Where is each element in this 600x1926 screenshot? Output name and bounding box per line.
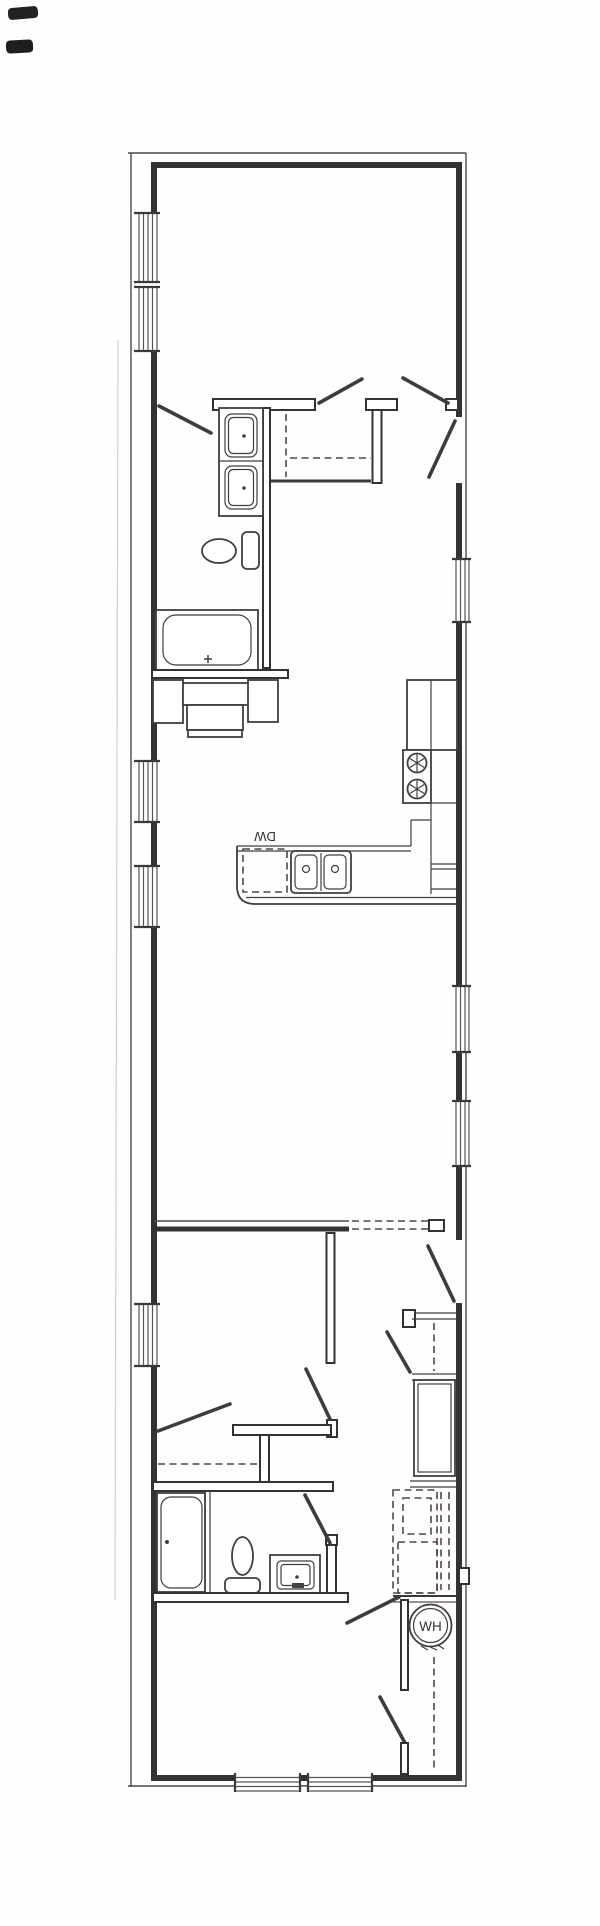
water-heater-closet: WH [347, 1597, 452, 1690]
closet-wall [401, 1743, 408, 1774]
window [452, 1101, 471, 1166]
bathroom-wall [153, 1593, 348, 1602]
scan-artifacts [6, 6, 118, 1600]
utility-cabinet [414, 1380, 455, 1476]
door-swing-closet [387, 1332, 410, 1372]
bathtub [157, 1493, 205, 1592]
closet-wall [260, 1435, 269, 1483]
front-bathroom [152, 408, 288, 678]
appliance-dashed [403, 1498, 431, 1534]
sink-drain [242, 434, 246, 438]
bathroom-wall [152, 670, 288, 678]
dishwasher-label: DW [253, 829, 275, 844]
cabinet [188, 730, 242, 737]
partition-wall [366, 399, 397, 410]
exterior-service-box [459, 1568, 469, 1584]
floor-plan-sheet: DW [0, 0, 600, 1926]
door-swing-closet [380, 1697, 405, 1743]
window [134, 1304, 160, 1366]
floor-plan-drawing: DW [0, 0, 600, 1926]
window [134, 213, 160, 282]
toilet-tank [242, 532, 259, 569]
cabinet [187, 705, 243, 730]
water-heater-label: WH [419, 1619, 442, 1634]
closet-wall [373, 410, 382, 483]
door-swing-bathroom [159, 406, 211, 433]
pipe-mark [430, 1647, 437, 1650]
closet-wall [233, 1425, 331, 1435]
window [134, 761, 160, 822]
hall-cabinets [153, 680, 278, 737]
cabinet [248, 680, 278, 722]
toilet-bowl [232, 1537, 253, 1575]
refrigerator [407, 680, 457, 750]
dishwasher [243, 849, 287, 892]
appliance-dashed [398, 1542, 437, 1593]
faucet-mark [292, 1583, 304, 1588]
closet-wall [401, 1600, 408, 1690]
door-swing-bedroom [403, 378, 448, 403]
range-burner [408, 780, 427, 799]
door-swing-rear-entry [428, 1246, 454, 1301]
bathroom-wall [153, 1482, 333, 1491]
bedroom-wall [327, 1233, 335, 1363]
window [452, 559, 471, 622]
cabinet [183, 683, 250, 705]
window [134, 287, 160, 351]
front-bedroom-partitions [159, 378, 458, 483]
window [134, 866, 160, 927]
sink-drain [295, 1575, 299, 1579]
bathroom-wall [327, 1545, 336, 1600]
tub-drain [165, 1540, 169, 1544]
sink-drain [242, 486, 246, 490]
laundry-area [393, 1380, 457, 1602]
rear-bedroom [158, 1233, 337, 1483]
rear-bathroom [153, 1482, 348, 1602]
window [235, 1773, 300, 1792]
scan-mark [8, 6, 39, 21]
scan-mark [6, 39, 34, 53]
wall-cap [429, 1220, 444, 1231]
range-burner [408, 754, 427, 773]
door-swing-closet [319, 379, 362, 403]
living-room-divider-wall [154, 1220, 454, 1301]
window [308, 1773, 372, 1792]
cabinet [153, 680, 183, 723]
front-hall-closet [267, 414, 371, 481]
scan-crease-line [115, 340, 118, 1600]
bathroom-wall [263, 408, 270, 668]
pipe-mark [438, 1645, 444, 1649]
toilet-tank [225, 1578, 260, 1593]
bathtub [156, 610, 258, 670]
door-swing-utility [347, 1597, 399, 1623]
door-swing-closet [158, 1404, 230, 1431]
door-swing-bedroom [306, 1369, 330, 1419]
hall-pantry-closet [387, 1310, 457, 1380]
toilet-bowl [202, 539, 236, 563]
door-swing-entry [429, 421, 455, 477]
door-swing-bathroom [305, 1495, 330, 1543]
window [452, 986, 471, 1052]
